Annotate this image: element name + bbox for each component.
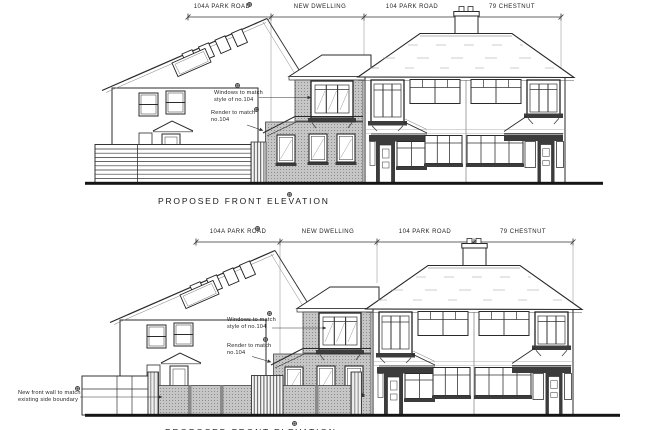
dim-label-104-park-road: 104 PARK ROAD [386, 4, 438, 10]
dim-label-79-chestnut: 79 CHESTNUT [489, 4, 535, 10]
note-windows-to-match-2: Windows to match style of no.104 [227, 317, 276, 331]
note-windows-to-match: Windows to match style of no.104 [214, 90, 263, 104]
keynote-marker [263, 337, 268, 342]
dimension-line [194, 239, 576, 246]
elevation-drawing-sheet: 104A PARK ROAD NEW DWELLING 104 PARK ROA… [0, 0, 645, 430]
keynote-marker [292, 421, 297, 426]
proposed-front-elevation-bottom [0, 215, 645, 430]
boundary-fence [95, 145, 251, 183]
dim-label-104-park-road-2: 104 PARK ROAD [399, 229, 451, 235]
dim-label-new-dwelling: NEW DWELLING [294, 4, 346, 10]
front-gate [252, 376, 284, 416]
note-render-to-match-2: Render to match no.104 [227, 343, 271, 357]
keynote-marker [267, 311, 272, 316]
wall-panel [159, 386, 253, 416]
keynote-marker [254, 107, 259, 112]
dim-label-79-chestnut-2: 79 CHESTNUT [500, 229, 546, 235]
existing-side-wall [82, 376, 148, 415]
dim-label-104a-park-road: 104A PARK ROAD [194, 4, 251, 10]
dimension-line [186, 14, 564, 21]
wall-pier [351, 372, 362, 415]
drawing-title-bottom: PROPOSED FRONT ELEVATION [165, 427, 337, 430]
wall-pier [148, 372, 159, 415]
keynote-marker [287, 192, 292, 197]
drawing-title-top: PROPOSED FRONT ELEVATION [158, 196, 330, 206]
dim-label-new-dwelling-2: NEW DWELLING [302, 229, 354, 235]
note-render-to-match: Render to match no.104 [211, 110, 255, 124]
keynote-marker [255, 226, 260, 231]
keynote-marker [75, 386, 80, 391]
keynote-marker [235, 83, 240, 88]
note-new-front-wall: New front wall to match existing side bo… [18, 390, 81, 404]
proposed-front-elevation-top [0, 0, 645, 215]
ground-line [85, 414, 620, 417]
side-gate [251, 142, 266, 183]
keynote-marker [247, 2, 252, 7]
ground-line [85, 182, 603, 185]
